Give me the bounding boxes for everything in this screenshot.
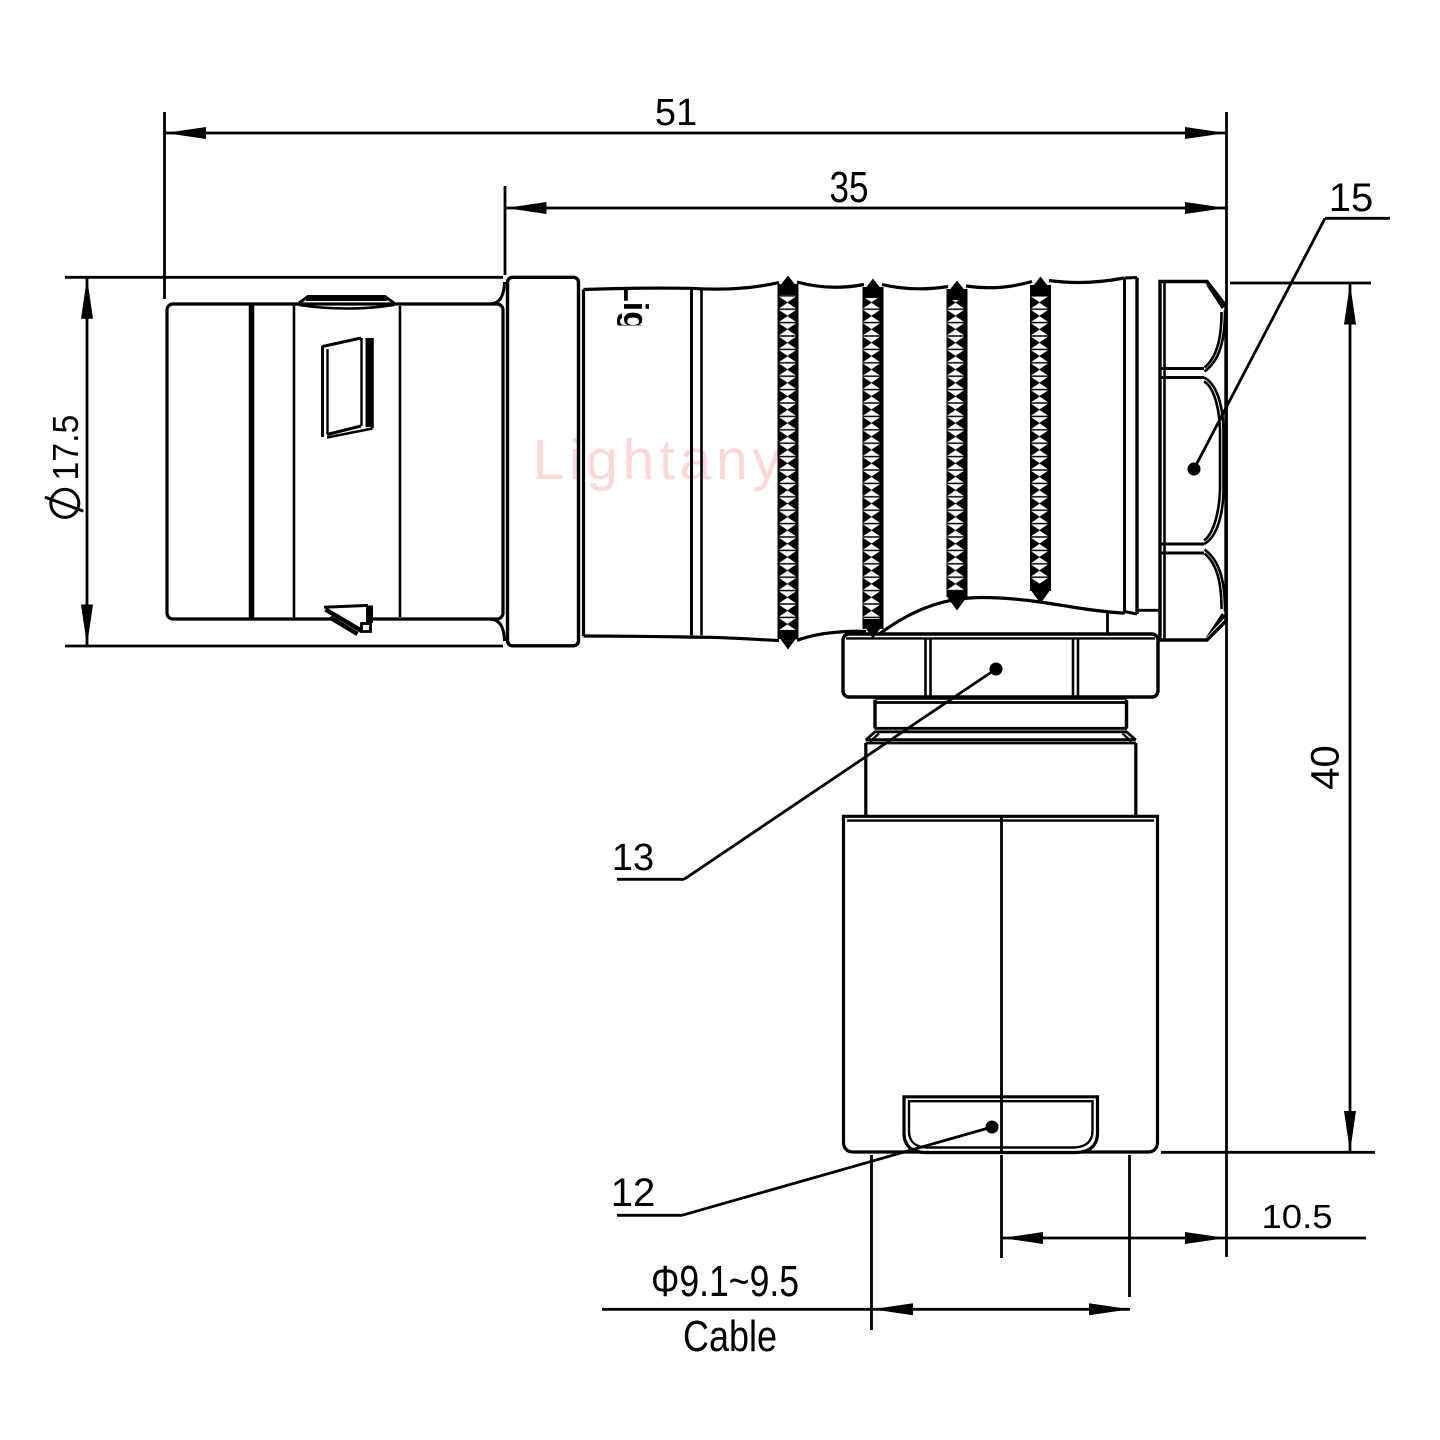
svg-text:12: 12 [611, 1171, 656, 1215]
svg-text:Lightany: Lightany [532, 428, 785, 492]
svg-text:51: 51 [655, 92, 697, 134]
svg-text:Lig: Lig [616, 281, 654, 332]
svg-text:Φ9.1~9.5: Φ9.1~9.5 [651, 1257, 799, 1306]
svg-text:35: 35 [830, 163, 869, 212]
svg-text:10.5: 10.5 [1262, 1198, 1333, 1235]
svg-text:13: 13 [612, 837, 654, 879]
svg-text:17.5: 17.5 [45, 415, 86, 481]
svg-text:Cable: Cable [683, 1312, 777, 1361]
svg-text:40: 40 [1304, 745, 1348, 790]
svg-text:15: 15 [1329, 176, 1374, 220]
